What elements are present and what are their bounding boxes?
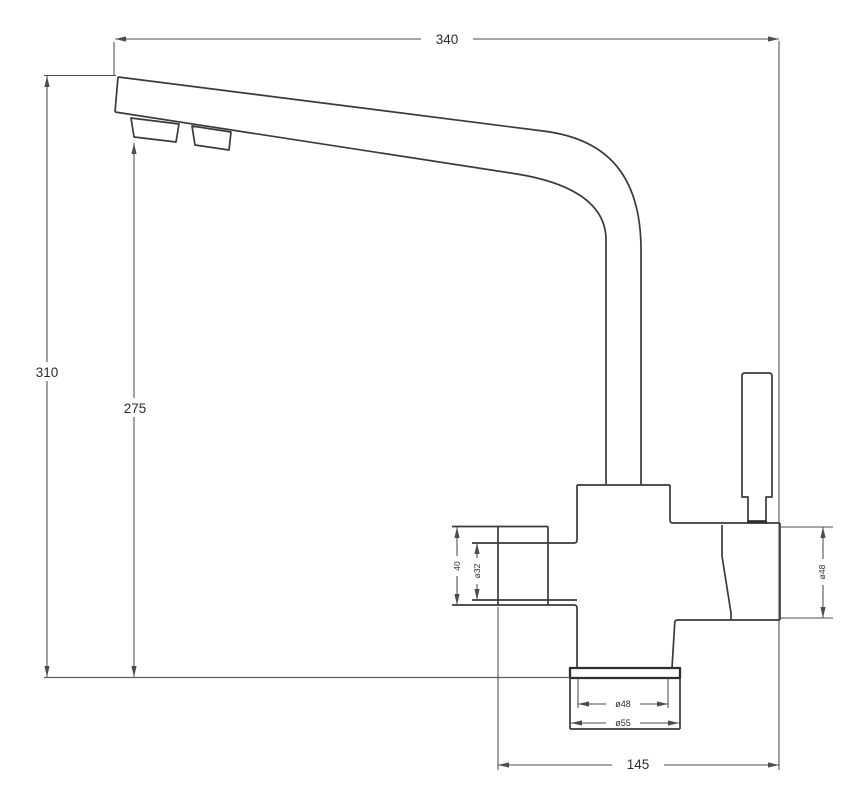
spout-outer-edge [118,77,641,485]
dim-label-o48-valve: ø48 [817,564,827,579]
dim-label-275: 275 [124,401,147,416]
base-flange-band [570,668,680,678]
dim-label-o48-base: ø48 [615,699,631,709]
body-right-lower [672,620,780,668]
dim-label-310: 310 [36,365,59,380]
handle-lever [742,373,772,521]
dim-label-145: 145 [627,757,650,772]
body-left-lower [452,605,577,668]
dim-label-340: 340 [436,32,459,47]
spout-tip [115,77,118,112]
valve-housing-joint [722,525,731,620]
side-port-block [452,527,548,606]
body-left-upper [472,485,577,543]
drawing-canvas: 340 310 275 145 40 [0,0,856,800]
faucet-outline [115,77,780,729]
dimensions: 340 310 275 145 40 [29,31,833,773]
body-right-upper [670,485,780,523]
dim-label-o32: ø32 [472,563,482,578]
dim-label-o55: ø55 [615,718,631,728]
spout-inner-edge [115,112,606,485]
faucet-technical-drawing: 340 310 275 145 40 [0,0,856,800]
dim-label-40: 40 [452,561,462,571]
